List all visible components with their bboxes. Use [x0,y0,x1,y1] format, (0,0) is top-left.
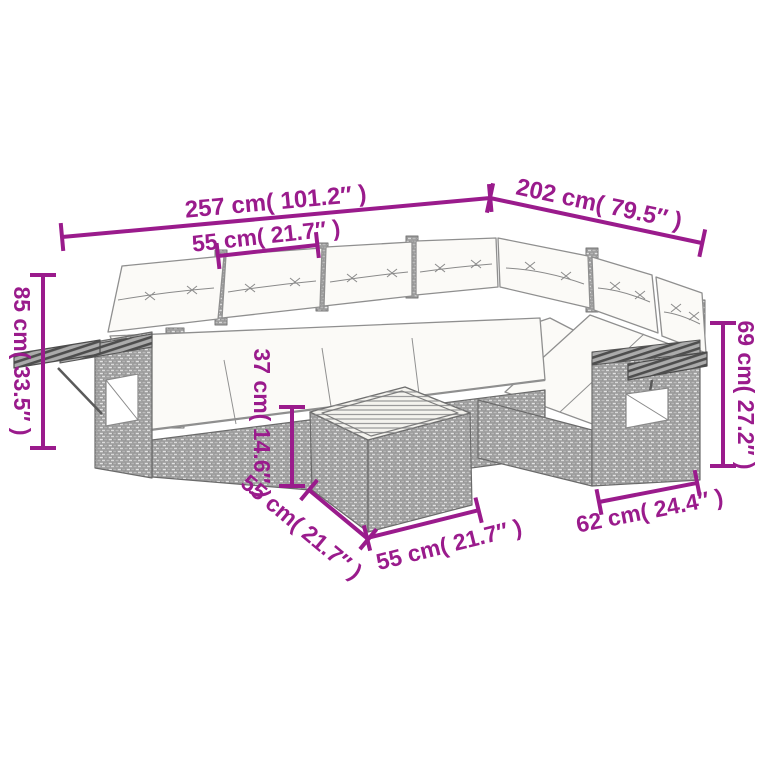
product-dimension-diagram: 257 cm( 101.2″ ) 202 cm( 79.5″ ) 55 cm( … [0,0,767,767]
dim-arm-height-line [710,323,736,466]
coffee-table [300,387,480,532]
back-cushion [108,256,224,332]
back-cushion [416,238,498,295]
sofa-illustration [14,236,707,532]
dim-back-height-label: 85 cm( 33.5″ ) [9,286,35,435]
dim-arm-height-label: 69 cm( 27.2″ ) [733,320,759,469]
back-cushion [222,248,322,318]
diagram-svg: 257 cm( 101.2″ ) 202 cm( 79.5″ ) 55 cm( … [0,0,767,767]
dim-arm-height: 69 cm( 27.2″ ) [710,320,759,469]
dim-right-depth-label: 202 cm( 79.5″ ) [514,174,685,236]
back-cushion [324,242,412,306]
